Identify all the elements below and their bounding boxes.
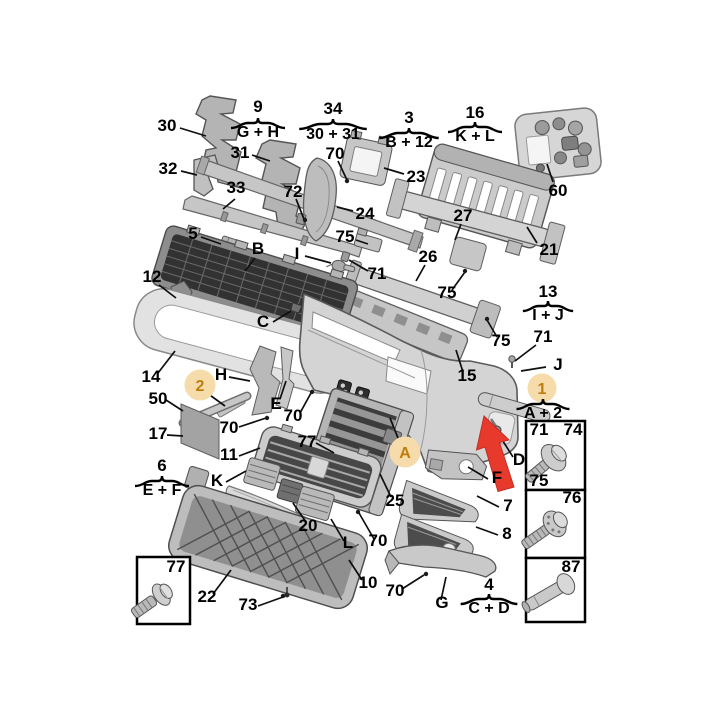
group-3-members: B + 12 <box>385 134 433 151</box>
letter-K: K <box>211 471 224 490</box>
group-16-members: K + L <box>455 128 495 145</box>
callout-75: 75 <box>438 283 457 302</box>
screw-71-icon <box>509 356 515 368</box>
group-label-16: 16 K + L <box>448 103 502 145</box>
letter-J: J <box>553 355 562 374</box>
diagram-canvas: 2 A 1 30 31 32 33 70 23 72 24 60 21 27 2… <box>0 0 720 720</box>
highlight-hotspot-1[interactable]: 1 <box>528 374 557 403</box>
group-4-number: 4 <box>484 575 494 594</box>
callout-77: 77 <box>298 432 317 451</box>
callout-75: 75 <box>492 331 511 350</box>
part-beam-bracket-75 <box>449 236 487 271</box>
part-lower-lip-G <box>385 545 496 577</box>
box-label-71: 71 <box>530 420 549 439</box>
highlight-1-label: 1 <box>538 381 547 398</box>
callout-25: 25 <box>386 491 405 510</box>
letter-B: B <box>252 239 264 258</box>
group-9-members: G + H <box>237 124 279 141</box>
callout-70: 70 <box>369 531 388 550</box>
box-label-87: 87 <box>562 557 581 576</box>
callout-70: 70 <box>284 406 303 425</box>
group-label-4: 4 C + D <box>461 575 518 617</box>
group-label-1: A + 2 <box>517 399 570 422</box>
callout-27: 27 <box>454 206 473 225</box>
callout-17: 17 <box>149 424 168 443</box>
callout-30: 30 <box>158 116 177 135</box>
letter-D: D <box>513 450 525 469</box>
callout-11: 11 <box>220 445 238 464</box>
group-label-6: 6 E + F <box>135 456 189 499</box>
highlight-A-label: A <box>399 445 411 462</box>
callout-23: 23 <box>407 167 426 186</box>
group-34-number: 34 <box>324 99 343 118</box>
group-34-members: 30 + 31 <box>306 126 360 143</box>
callout-70: 70 <box>326 144 345 163</box>
group-6-members: E + F <box>143 482 182 499</box>
box-label-75: 75 <box>530 471 549 490</box>
group-3-number: 3 <box>404 108 413 127</box>
callout-22: 22 <box>198 587 217 606</box>
callout-50: 50 <box>149 389 168 408</box>
callout-7: 7 <box>503 496 512 515</box>
box-label-77: 77 <box>167 557 186 576</box>
box-label-76: 76 <box>563 488 582 507</box>
group-6-number: 6 <box>157 456 166 475</box>
callout-20: 20 <box>299 516 318 535</box>
callout-14: 14 <box>142 367 161 386</box>
callout-71: 71 <box>534 327 553 346</box>
letter-F: F <box>492 468 502 487</box>
callout-21: 21 <box>540 240 559 259</box>
group-label-3: 3 B + 12 <box>379 108 438 151</box>
callout-10: 10 <box>359 573 378 592</box>
callout-73: 73 <box>239 595 258 614</box>
callout-31: 31 <box>231 143 250 162</box>
callout-33: 33 <box>227 178 246 197</box>
highlight-hotspot-2[interactable]: 2 <box>185 370 216 401</box>
group-label-34: 34 30 + 31 <box>299 99 367 143</box>
callout-70: 70 <box>220 418 239 437</box>
group-9-number: 9 <box>253 97 262 116</box>
callout-15: 15 <box>458 366 477 385</box>
callout-12: 12 <box>143 267 162 286</box>
callout-70: 70 <box>386 581 405 600</box>
part-air-duct-24 <box>304 158 337 241</box>
callout-8: 8 <box>502 524 511 543</box>
highlight-2-label: 2 <box>196 378 205 395</box>
exploded-parts-diagram: 2 A 1 30 31 32 33 70 23 72 24 60 21 27 2… <box>0 0 720 720</box>
callout-72: 72 <box>284 182 303 201</box>
callout-32: 32 <box>159 159 178 178</box>
callout-75: 75 <box>336 227 355 246</box>
letter-L: L <box>343 533 353 552</box>
group-label-9: 9 G + H <box>231 97 285 141</box>
letter-E: E <box>270 394 281 413</box>
group-16-number: 16 <box>466 103 485 122</box>
letter-I: I <box>295 244 300 263</box>
callout-26: 26 <box>419 247 438 266</box>
group-13-members: I + J <box>532 307 564 324</box>
group-4-members: C + D <box>468 600 509 617</box>
callout-24: 24 <box>356 204 375 223</box>
group-label-13: 13 I + J <box>523 282 573 324</box>
letter-G: G <box>435 593 448 612</box>
callout-71: 71 <box>368 264 387 283</box>
letter-C: C <box>257 312 269 331</box>
group-13-number: 13 <box>539 282 558 301</box>
highlight-hotspot-A[interactable]: A <box>390 437 421 468</box>
letter-H: H <box>215 365 227 384</box>
box-label-74: 74 <box>564 420 583 439</box>
callout-60: 60 <box>549 181 568 200</box>
callout-5: 5 <box>188 224 197 243</box>
